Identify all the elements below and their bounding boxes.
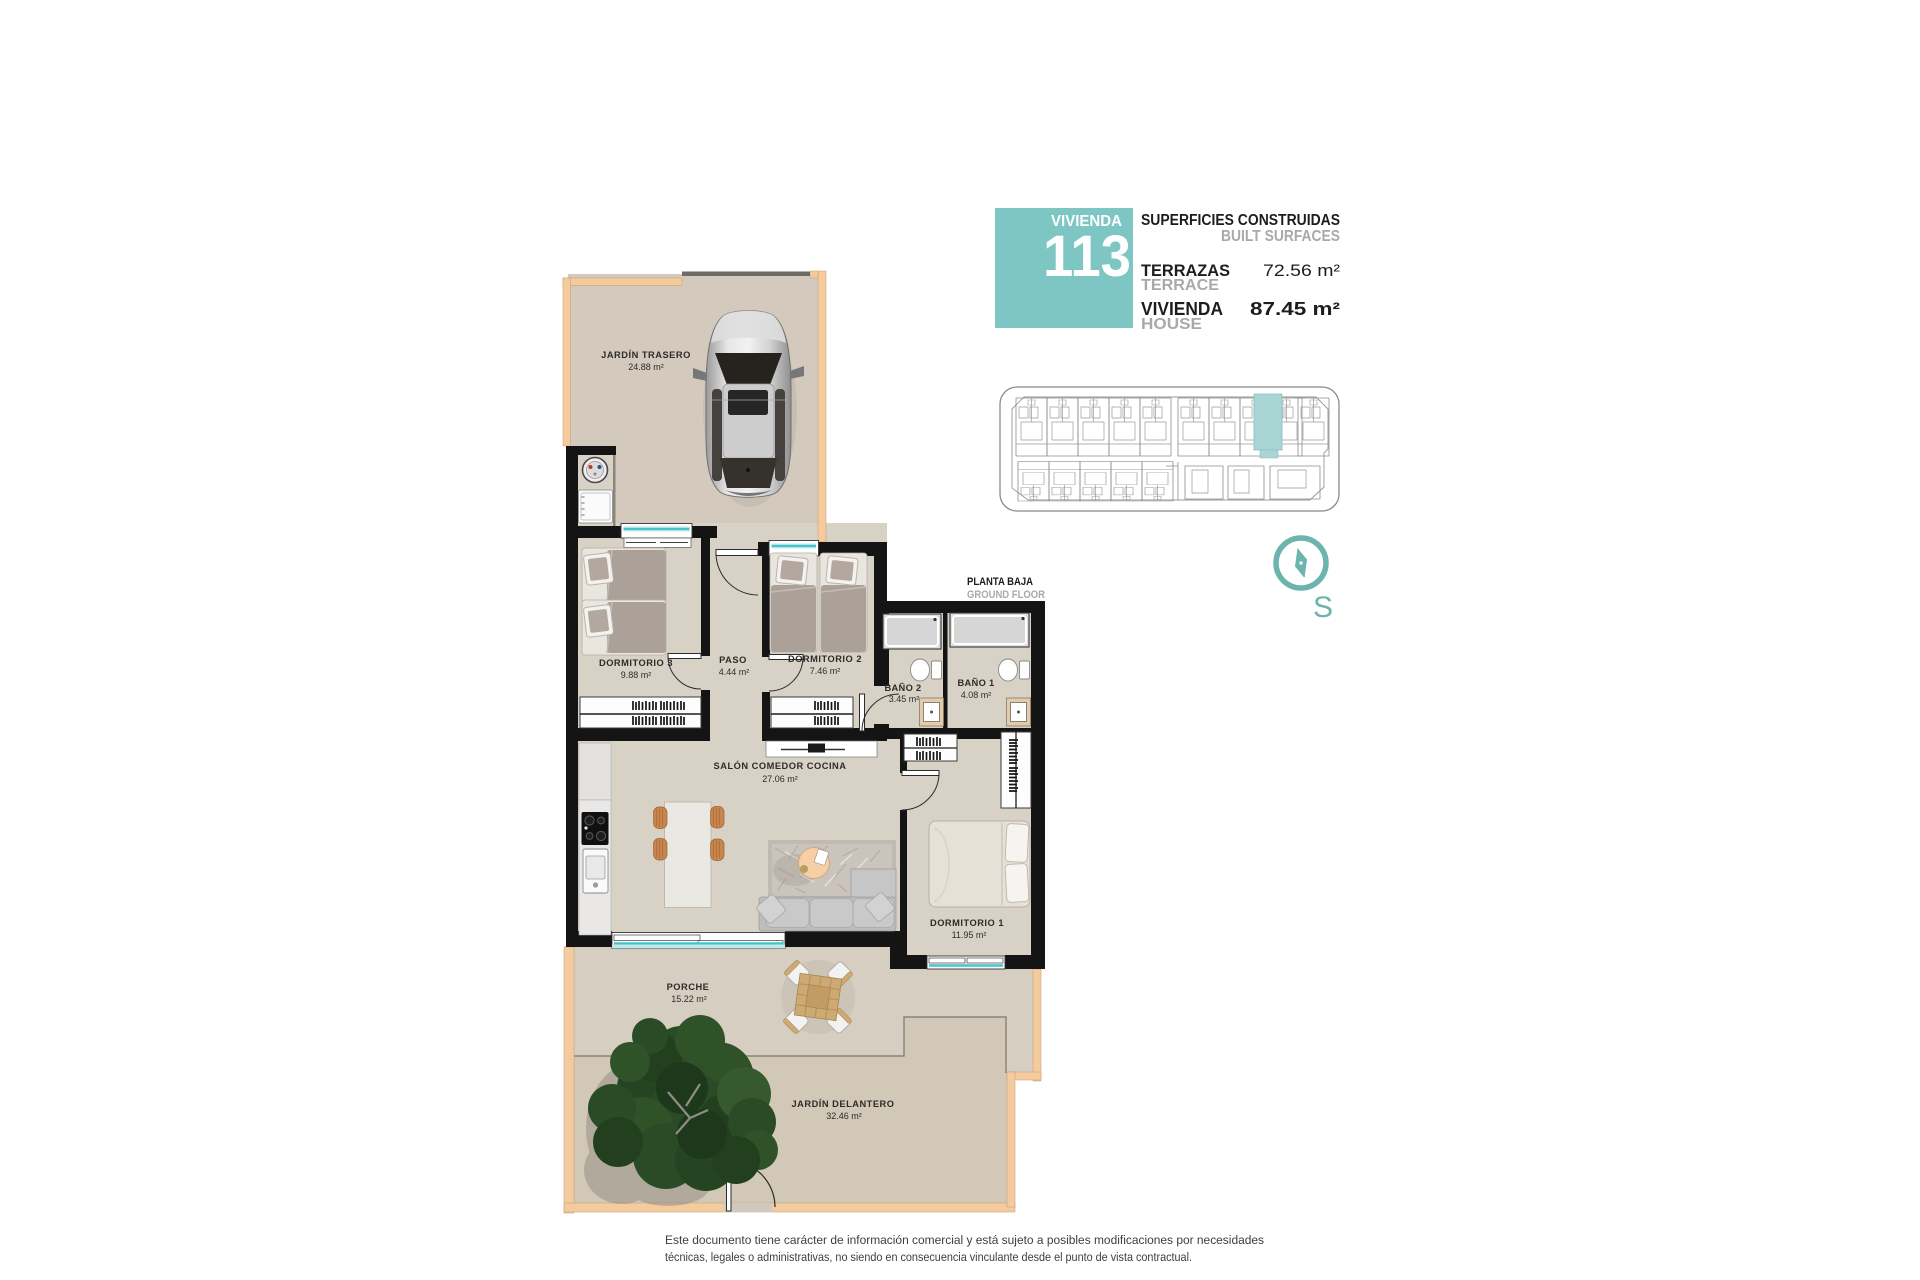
svg-text:DORMITORIO 3: DORMITORIO 3 [599, 658, 673, 668]
svg-text:11.95 m²: 11.95 m² [952, 930, 987, 940]
svg-text:BAÑO 1: BAÑO 1 [958, 678, 995, 688]
svg-text:JARDÍN TRASERO: JARDÍN TRASERO [601, 350, 691, 360]
svg-text:4.44 m²: 4.44 m² [719, 667, 750, 677]
svg-text:87.45 m²: 87.45 m² [1250, 299, 1340, 319]
svg-text:DORMITORIO 1: DORMITORIO 1 [930, 918, 1004, 928]
svg-text:JARDÍN DELANTERO: JARDÍN DELANTERO [791, 1099, 894, 1109]
svg-text:BAÑO 2: BAÑO 2 [885, 683, 922, 693]
svg-text:PORCHE: PORCHE [667, 982, 710, 992]
svg-text:PASO: PASO [719, 655, 747, 665]
svg-text:SUPERFICIES CONSTRUIDAS: SUPERFICIES CONSTRUIDAS [1141, 212, 1340, 229]
svg-text:SALÓN COMEDOR COCINA: SALÓN COMEDOR COCINA [714, 760, 847, 771]
svg-text:113: 113 [1043, 224, 1131, 289]
svg-text:HOUSE: HOUSE [1141, 316, 1202, 333]
svg-text:BUILT SURFACES: BUILT SURFACES [1221, 228, 1340, 245]
svg-text:72.56 m²: 72.56 m² [1263, 261, 1340, 280]
svg-text:técnicas, legales o administra: técnicas, legales o administrativas, no … [665, 1250, 1192, 1264]
svg-text:7.46 m²: 7.46 m² [810, 666, 841, 676]
svg-text:TERRACE: TERRACE [1141, 277, 1219, 294]
svg-text:9.88 m²: 9.88 m² [621, 670, 652, 680]
svg-text:DORMITORIO 2: DORMITORIO 2 [788, 654, 862, 664]
svg-text:24.88 m²: 24.88 m² [628, 362, 664, 372]
svg-text:Este documento tiene carácter: Este documento tiene carácter de informa… [665, 1233, 1264, 1247]
svg-text:4.08 m²: 4.08 m² [961, 690, 992, 700]
svg-text:27.06 m²: 27.06 m² [762, 774, 798, 784]
svg-text:15.22 m²: 15.22 m² [671, 994, 707, 1004]
svg-text:GROUND FLOOR: GROUND FLOOR [967, 589, 1045, 601]
svg-text:3.45 m²: 3.45 m² [889, 694, 920, 704]
svg-text:S: S [1313, 591, 1333, 624]
svg-text:PLANTA BAJA: PLANTA BAJA [967, 576, 1033, 588]
svg-text:32.46 m²: 32.46 m² [826, 1111, 862, 1121]
